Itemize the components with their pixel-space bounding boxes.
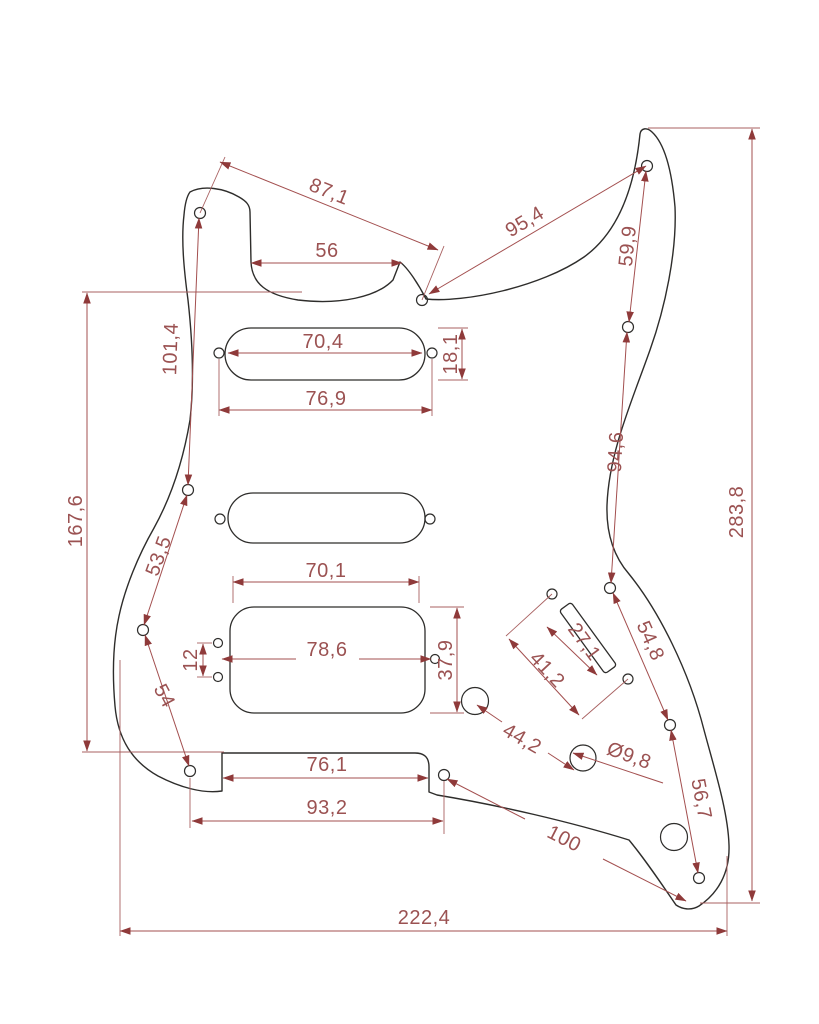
dim-label-167-6: 167,6 (65, 495, 87, 548)
dim-label-70-4: 70,4 (303, 331, 344, 353)
dim-label-222-4: 222,4 (398, 907, 451, 929)
dim-label-76-1: 76,1 (307, 754, 348, 776)
dim-label-76-9: 76,9 (306, 388, 347, 410)
dim-label-78-6: 78,6 (307, 639, 348, 661)
dim-label-283-8: 283,8 (726, 486, 748, 539)
dim-label-70-1: 70,1 (306, 560, 347, 582)
dim-label-56: 56 (315, 240, 338, 262)
dim-label-94-6: 94,6 (604, 431, 628, 473)
dim-label-93-2: 93,2 (307, 797, 348, 819)
dim-label-59-9: 59,9 (615, 224, 641, 267)
dim-label-37-9: 37,9 (435, 640, 457, 681)
dim-label-101-4: 101,4 (159, 322, 183, 375)
drawing-canvas: 87,1 95,4 59,9 56 101,4 167,6 53,5 54 70… (0, 0, 819, 1024)
paper-background (0, 0, 819, 1024)
dim-label-12: 12 (180, 648, 202, 671)
dim-label-18-1: 18,1 (440, 334, 462, 375)
pickguard-technical-drawing: 87,1 95,4 59,9 56 101,4 167,6 53,5 54 70… (0, 0, 819, 1024)
